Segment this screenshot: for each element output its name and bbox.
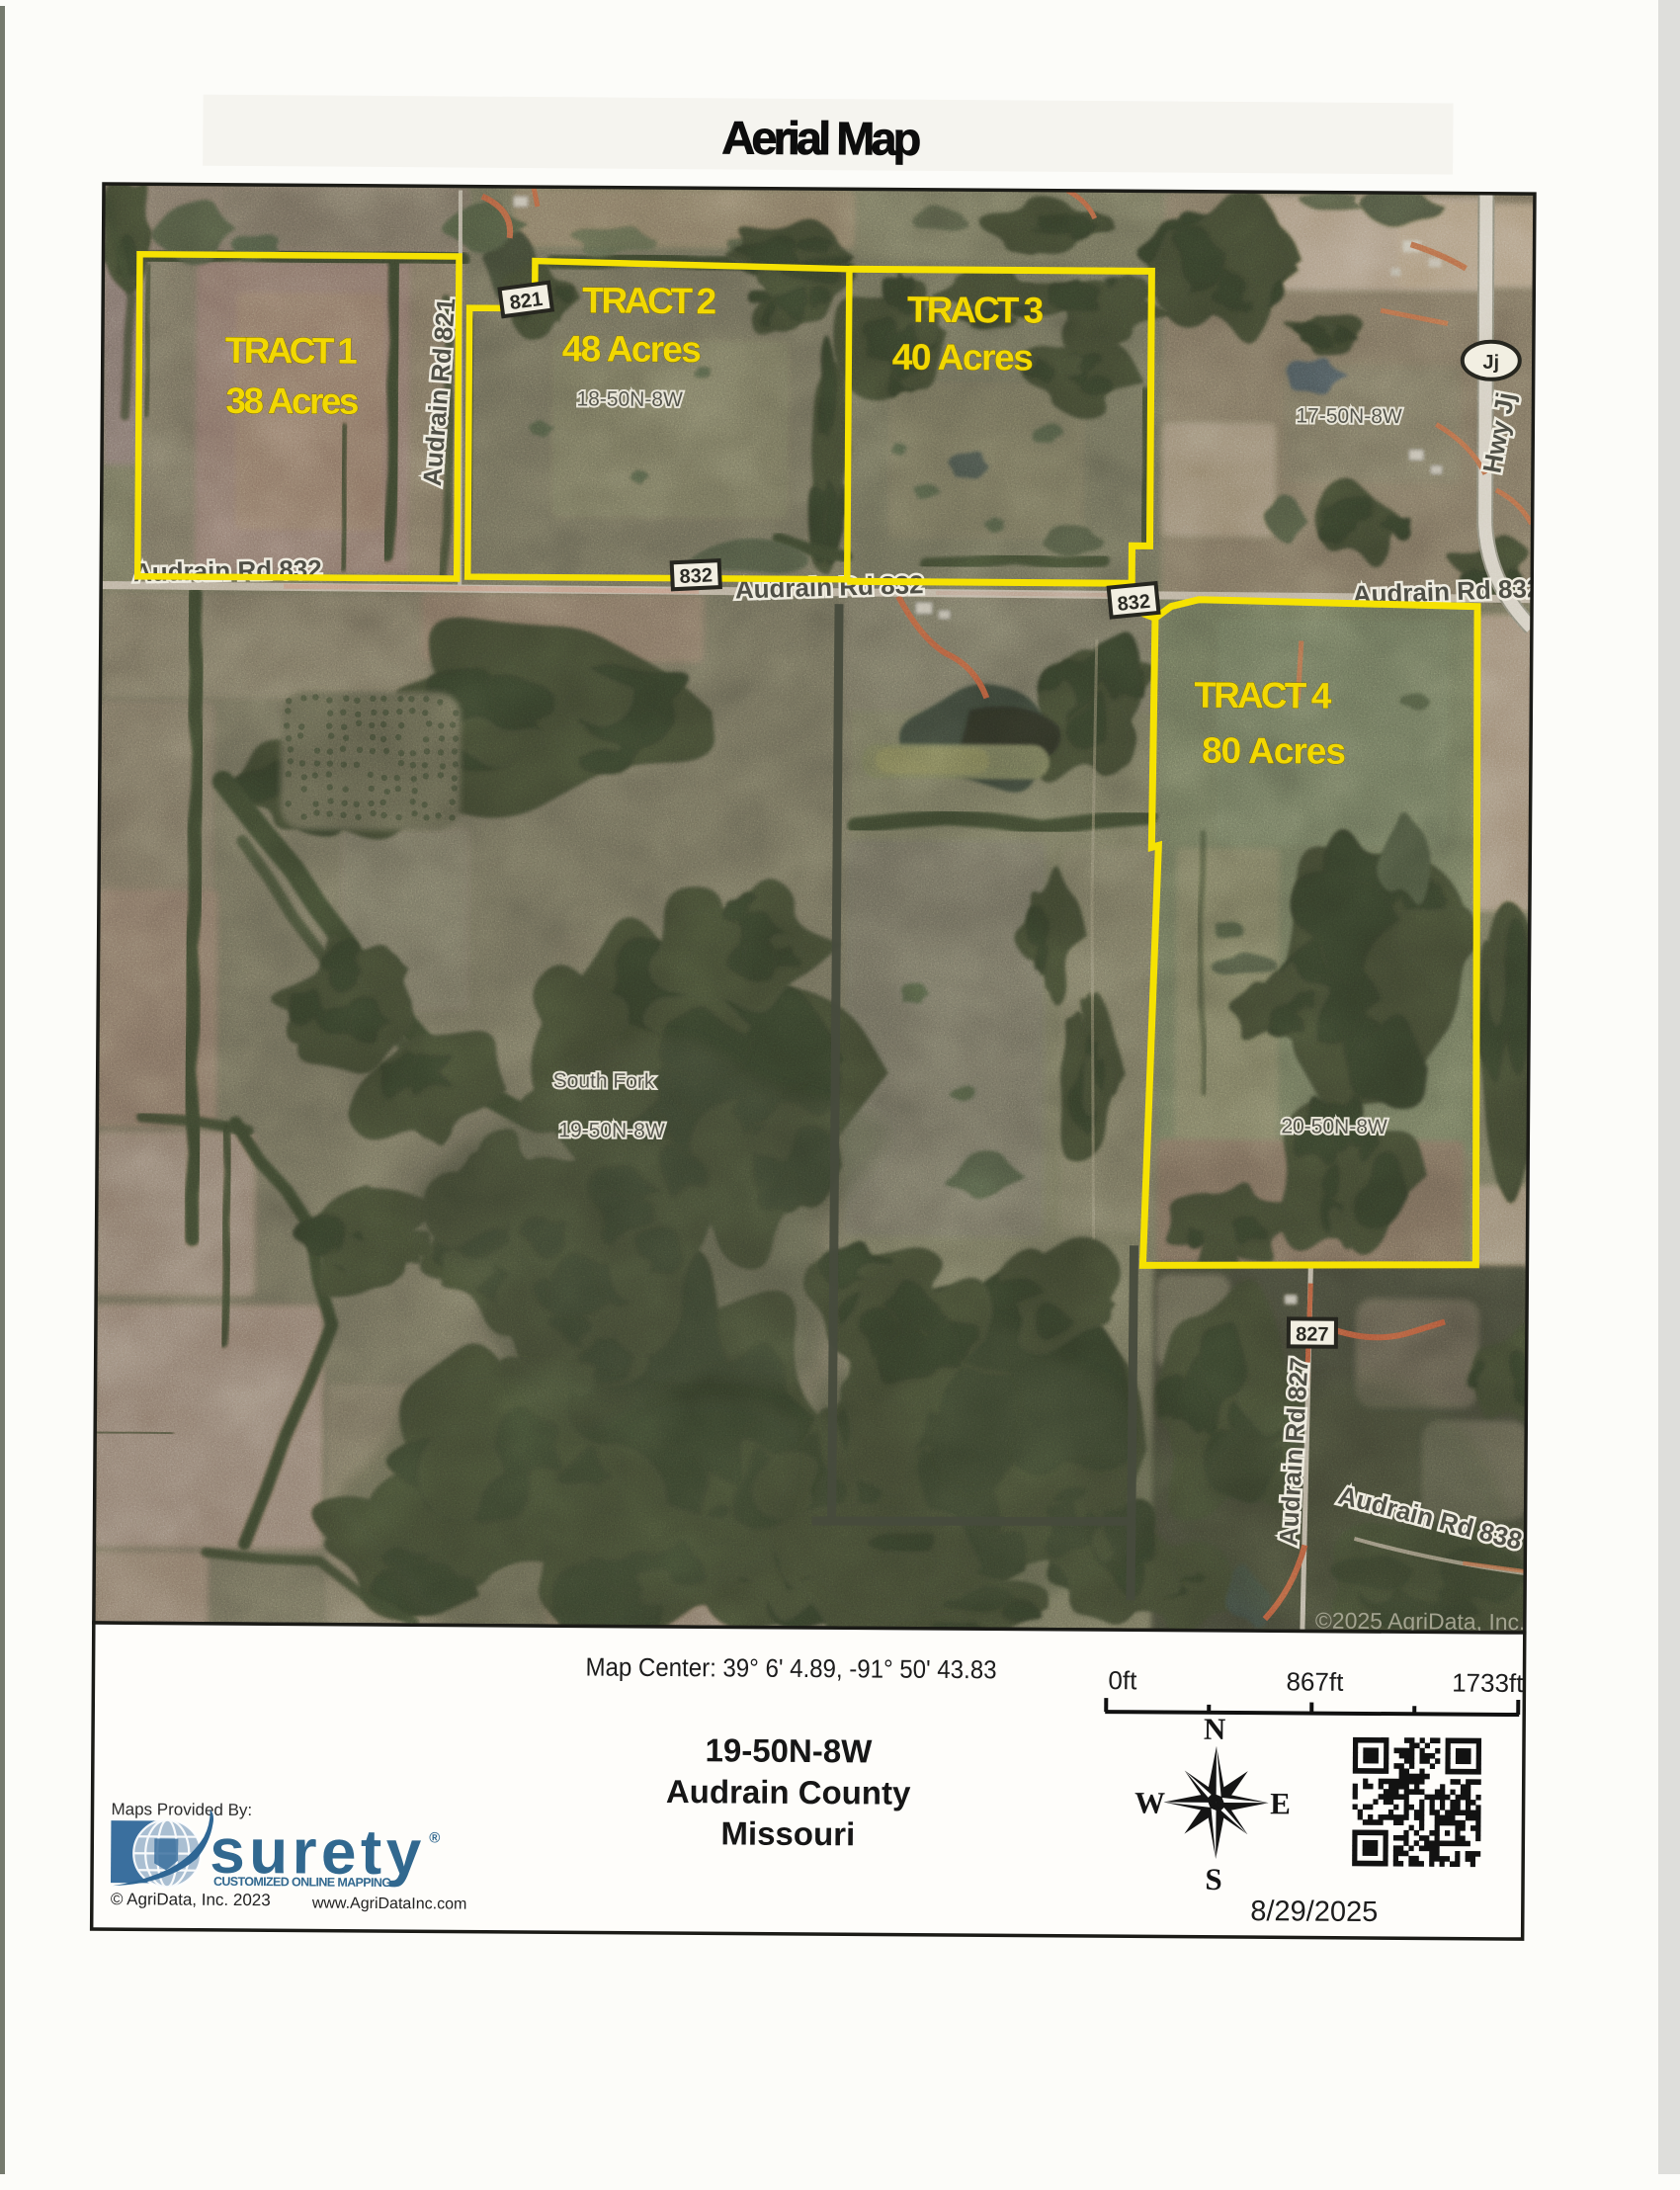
- svg-text:Audrain Rd 832: Audrain Rd 832: [133, 554, 322, 588]
- svg-text:38 Acres: 38 Acres: [225, 380, 359, 422]
- svg-text:Missouri: Missouri: [720, 1814, 855, 1852]
- svg-text:Audrain County: Audrain County: [666, 1773, 911, 1811]
- svg-text:1733ft: 1733ft: [1452, 1668, 1524, 1699]
- svg-text:S: S: [1205, 1862, 1221, 1896]
- svg-text:80 Acres: 80 Acres: [1202, 730, 1346, 772]
- svg-text:40 Acres: 40 Acres: [892, 337, 1034, 379]
- svg-text:821: 821: [508, 289, 544, 314]
- svg-text:867ft: 867ft: [1286, 1666, 1344, 1696]
- svg-text:www.AgriDataInc.com: www.AgriDataInc.com: [311, 1895, 467, 1913]
- svg-text:17-50N-8W: 17-50N-8W: [1296, 404, 1402, 428]
- svg-text:20-50N-8W: 20-50N-8W: [1281, 1115, 1387, 1138]
- svg-text:Map Center: 39° 6' 4.89, -91°: Map Center: 39° 6' 4.89, -91° 50' 43.83: [585, 1651, 996, 1684]
- svg-text:®: ®: [429, 1829, 440, 1846]
- svg-text:18-50N-8W: 18-50N-8W: [576, 387, 683, 411]
- svg-text:8/29/2025: 8/29/2025: [1250, 1895, 1378, 1928]
- svg-text:TRACT 1: TRACT 1: [225, 330, 358, 372]
- svg-text:832: 832: [679, 564, 713, 587]
- svg-text:Audrain Rd 832: Audrain Rd 832: [734, 569, 923, 604]
- svg-text:832: 832: [1117, 591, 1151, 616]
- svg-text:TRACT 4: TRACT 4: [1194, 675, 1332, 716]
- svg-text:TRACT 3: TRACT 3: [907, 290, 1044, 331]
- svg-text:CUSTOMIZED ONLINE MAPPING: CUSTOMIZED ONLINE MAPPING: [213, 1875, 391, 1890]
- svg-text:48 Acres: 48 Acres: [562, 328, 702, 370]
- svg-text:0ft: 0ft: [1108, 1665, 1137, 1695]
- svg-text:E: E: [1270, 1786, 1291, 1820]
- svg-text:827: 827: [1296, 1323, 1329, 1345]
- svg-text:South Fork: South Fork: [553, 1069, 655, 1093]
- svg-text:Aerial Map: Aerial Map: [721, 111, 921, 164]
- svg-text:Jj: Jj: [1482, 352, 1499, 374]
- svg-text:TRACT 2: TRACT 2: [582, 280, 716, 321]
- svg-text:© AgriData, Inc. 2023: © AgriData, Inc. 2023: [111, 1890, 271, 1909]
- svg-text:19-50N-8W: 19-50N-8W: [558, 1119, 665, 1142]
- svg-text:N: N: [1204, 1712, 1226, 1746]
- svg-text:W: W: [1134, 1785, 1165, 1819]
- svg-text:19-50N-8W: 19-50N-8W: [705, 1731, 873, 1769]
